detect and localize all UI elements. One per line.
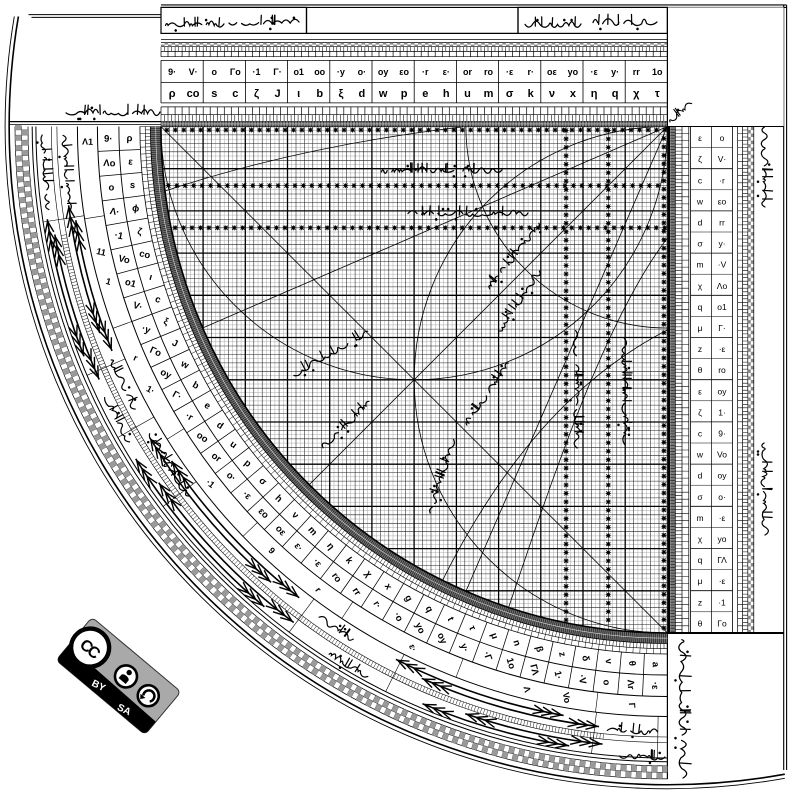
svg-text:ro: ro: [718, 365, 726, 375]
svg-text:σ: σ: [506, 88, 514, 100]
svg-text:·V: ·V: [718, 260, 727, 270]
svg-text:d: d: [359, 88, 366, 100]
svg-text:x: x: [570, 88, 577, 100]
svg-text:μ: μ: [698, 323, 703, 333]
svg-text:m: m: [696, 260, 703, 270]
svg-text:oy: oy: [378, 67, 389, 77]
svg-text:Γ·: Γ·: [273, 67, 281, 77]
svg-text:rr: rr: [719, 218, 725, 228]
svg-text:1o: 1o: [652, 67, 663, 77]
svg-text:ro: ro: [484, 67, 494, 77]
svg-text:y·: y·: [718, 239, 725, 249]
svg-text:q: q: [612, 88, 619, 100]
svg-text:9·: 9·: [718, 429, 726, 439]
svg-text:ζ: ζ: [698, 154, 702, 164]
svg-text:o1: o1: [293, 67, 304, 77]
svg-text:ζ: ζ: [254, 88, 259, 100]
svg-text:ζ: ζ: [698, 407, 702, 417]
svg-text:Vo: Vo: [717, 450, 727, 460]
svg-text:oo: oo: [314, 67, 325, 77]
svg-text:oε: oε: [547, 67, 557, 77]
svg-text:yo: yo: [568, 67, 579, 77]
svg-text:·y: ·y: [337, 67, 345, 77]
svg-text:ΓΛ: ΓΛ: [717, 555, 727, 565]
svg-text:ε·: ε·: [443, 67, 450, 77]
svg-text:m: m: [696, 513, 703, 523]
svg-text:Λo: Λo: [103, 158, 116, 170]
svg-text:τ: τ: [655, 88, 660, 100]
svg-text:9·: 9·: [104, 134, 113, 145]
svg-text:σ: σ: [697, 492, 703, 502]
svg-text:ε: ε: [698, 133, 702, 143]
svg-text:c: c: [232, 88, 238, 100]
svg-text:q: q: [698, 555, 703, 565]
svg-text:ρ: ρ: [126, 133, 132, 144]
svg-text:Λ1: Λ1: [82, 137, 93, 147]
svg-text:·ε: ·ε: [506, 67, 514, 77]
svg-text:ρ: ρ: [169, 88, 176, 100]
svg-text:s: s: [211, 88, 217, 100]
svg-text:r·: r·: [527, 67, 534, 77]
svg-text:w: w: [696, 196, 704, 206]
svg-text:p: p: [401, 88, 408, 100]
svg-text:V·: V·: [189, 67, 198, 77]
svg-text:Γ·: Γ·: [718, 323, 726, 333]
svg-text:z: z: [698, 597, 702, 607]
svg-text:εo: εo: [718, 196, 727, 206]
svg-text:o: o: [720, 133, 725, 143]
svg-text:·ε: ·ε: [719, 344, 726, 354]
svg-text:θ: θ: [626, 660, 637, 666]
svg-text:θ: θ: [698, 618, 703, 628]
svg-text:·ε: ·ε: [649, 682, 660, 690]
svg-text:h: h: [443, 88, 450, 100]
svg-text:Λr: Λr: [624, 679, 636, 690]
svg-text:·r: ·r: [422, 67, 429, 77]
svg-text:θ: θ: [698, 365, 703, 375]
svg-text:χ: χ: [698, 534, 703, 544]
svg-text:k: k: [528, 88, 535, 100]
svg-text:V·: V·: [718, 154, 727, 164]
svg-text:z: z: [698, 344, 702, 354]
svg-text:oy: oy: [718, 471, 728, 481]
svg-text:y·: y·: [611, 67, 619, 77]
svg-text:Vo: Vo: [561, 691, 573, 704]
svg-text:w: w: [696, 450, 704, 460]
svg-text:d: d: [698, 471, 703, 481]
svg-text:Λo: Λo: [717, 281, 728, 291]
svg-text:yo: yo: [718, 534, 727, 544]
svg-text:ν: ν: [549, 88, 555, 100]
svg-text:or: or: [463, 67, 472, 77]
svg-text:·1: ·1: [252, 67, 260, 77]
svg-text:ξ: ξ: [338, 88, 343, 100]
svg-text:Γo: Γo: [230, 67, 241, 77]
svg-text:·ε: ·ε: [719, 513, 726, 523]
svg-text:w: w: [378, 88, 388, 100]
svg-text:εo: εo: [399, 67, 409, 77]
svg-text:ε: ε: [698, 386, 702, 396]
svg-text:η: η: [591, 88, 598, 100]
svg-text:rr: rr: [633, 67, 641, 77]
svg-text:J: J: [274, 88, 280, 100]
svg-text:χ: χ: [698, 281, 703, 291]
svg-text:·ε: ·ε: [590, 67, 598, 77]
svg-text:1·: 1·: [718, 407, 726, 417]
svg-text:co: co: [187, 88, 200, 100]
svg-text:ι: ι: [297, 88, 300, 100]
svg-text:a: a: [650, 662, 661, 668]
svg-text:o·: o·: [718, 492, 726, 502]
svg-text:·1: ·1: [718, 597, 726, 607]
svg-text:m: m: [484, 88, 494, 100]
svg-text:oy: oy: [718, 386, 728, 396]
svg-text:·r: ·r: [719, 175, 725, 185]
svg-text:σ: σ: [697, 239, 703, 249]
svg-text:e: e: [422, 88, 428, 100]
svg-text:d: d: [698, 218, 703, 228]
svg-text:o1: o1: [717, 302, 727, 312]
svg-text:o·: o·: [358, 67, 367, 77]
svg-text:·ε: ·ε: [719, 576, 726, 586]
svg-text:μ: μ: [698, 576, 703, 586]
svg-text:Λ·: Λ·: [109, 206, 120, 218]
svg-text:9·: 9·: [168, 67, 176, 77]
svg-text:b: b: [316, 88, 323, 100]
svg-text:o: o: [212, 67, 218, 77]
svg-text:Γo: Γo: [717, 618, 727, 628]
svg-text:χ: χ: [633, 88, 640, 100]
svg-text:u: u: [464, 88, 471, 100]
svg-text:q: q: [698, 302, 703, 312]
